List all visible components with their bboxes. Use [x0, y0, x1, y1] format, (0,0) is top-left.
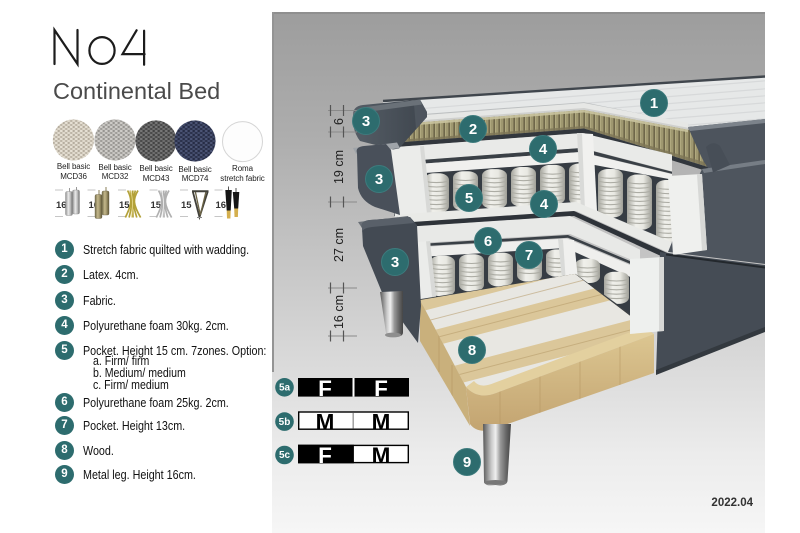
svg-text:5b: 5b: [279, 417, 291, 428]
svg-text:9: 9: [463, 454, 471, 471]
svg-text:16 cm: 16 cm: [332, 295, 346, 329]
svg-text:4: 4: [539, 141, 548, 158]
svg-text:3: 3: [375, 171, 383, 188]
svg-text:F: F: [374, 376, 388, 401]
svg-text:3: 3: [391, 254, 399, 271]
svg-text:7: 7: [525, 247, 533, 264]
svg-text:3: 3: [362, 113, 370, 130]
svg-text:M: M: [372, 443, 391, 468]
svg-text:8: 8: [468, 342, 476, 359]
svg-text:M: M: [372, 410, 391, 435]
svg-text:4: 4: [540, 196, 549, 213]
svg-text:1: 1: [650, 95, 658, 112]
svg-text:27 cm: 27 cm: [332, 228, 346, 262]
svg-text:F: F: [318, 443, 332, 468]
svg-text:6: 6: [484, 233, 492, 250]
svg-text:2: 2: [469, 121, 477, 138]
svg-text:19 cm: 19 cm: [332, 150, 346, 184]
svg-text:5: 5: [465, 190, 473, 207]
svg-text:M: M: [316, 410, 335, 435]
svg-text:2022.04: 2022.04: [711, 497, 753, 509]
svg-text:5a: 5a: [279, 383, 291, 394]
svg-text:F: F: [318, 376, 332, 401]
svg-text:5c: 5c: [279, 450, 291, 461]
svg-text:6: 6: [332, 118, 346, 125]
